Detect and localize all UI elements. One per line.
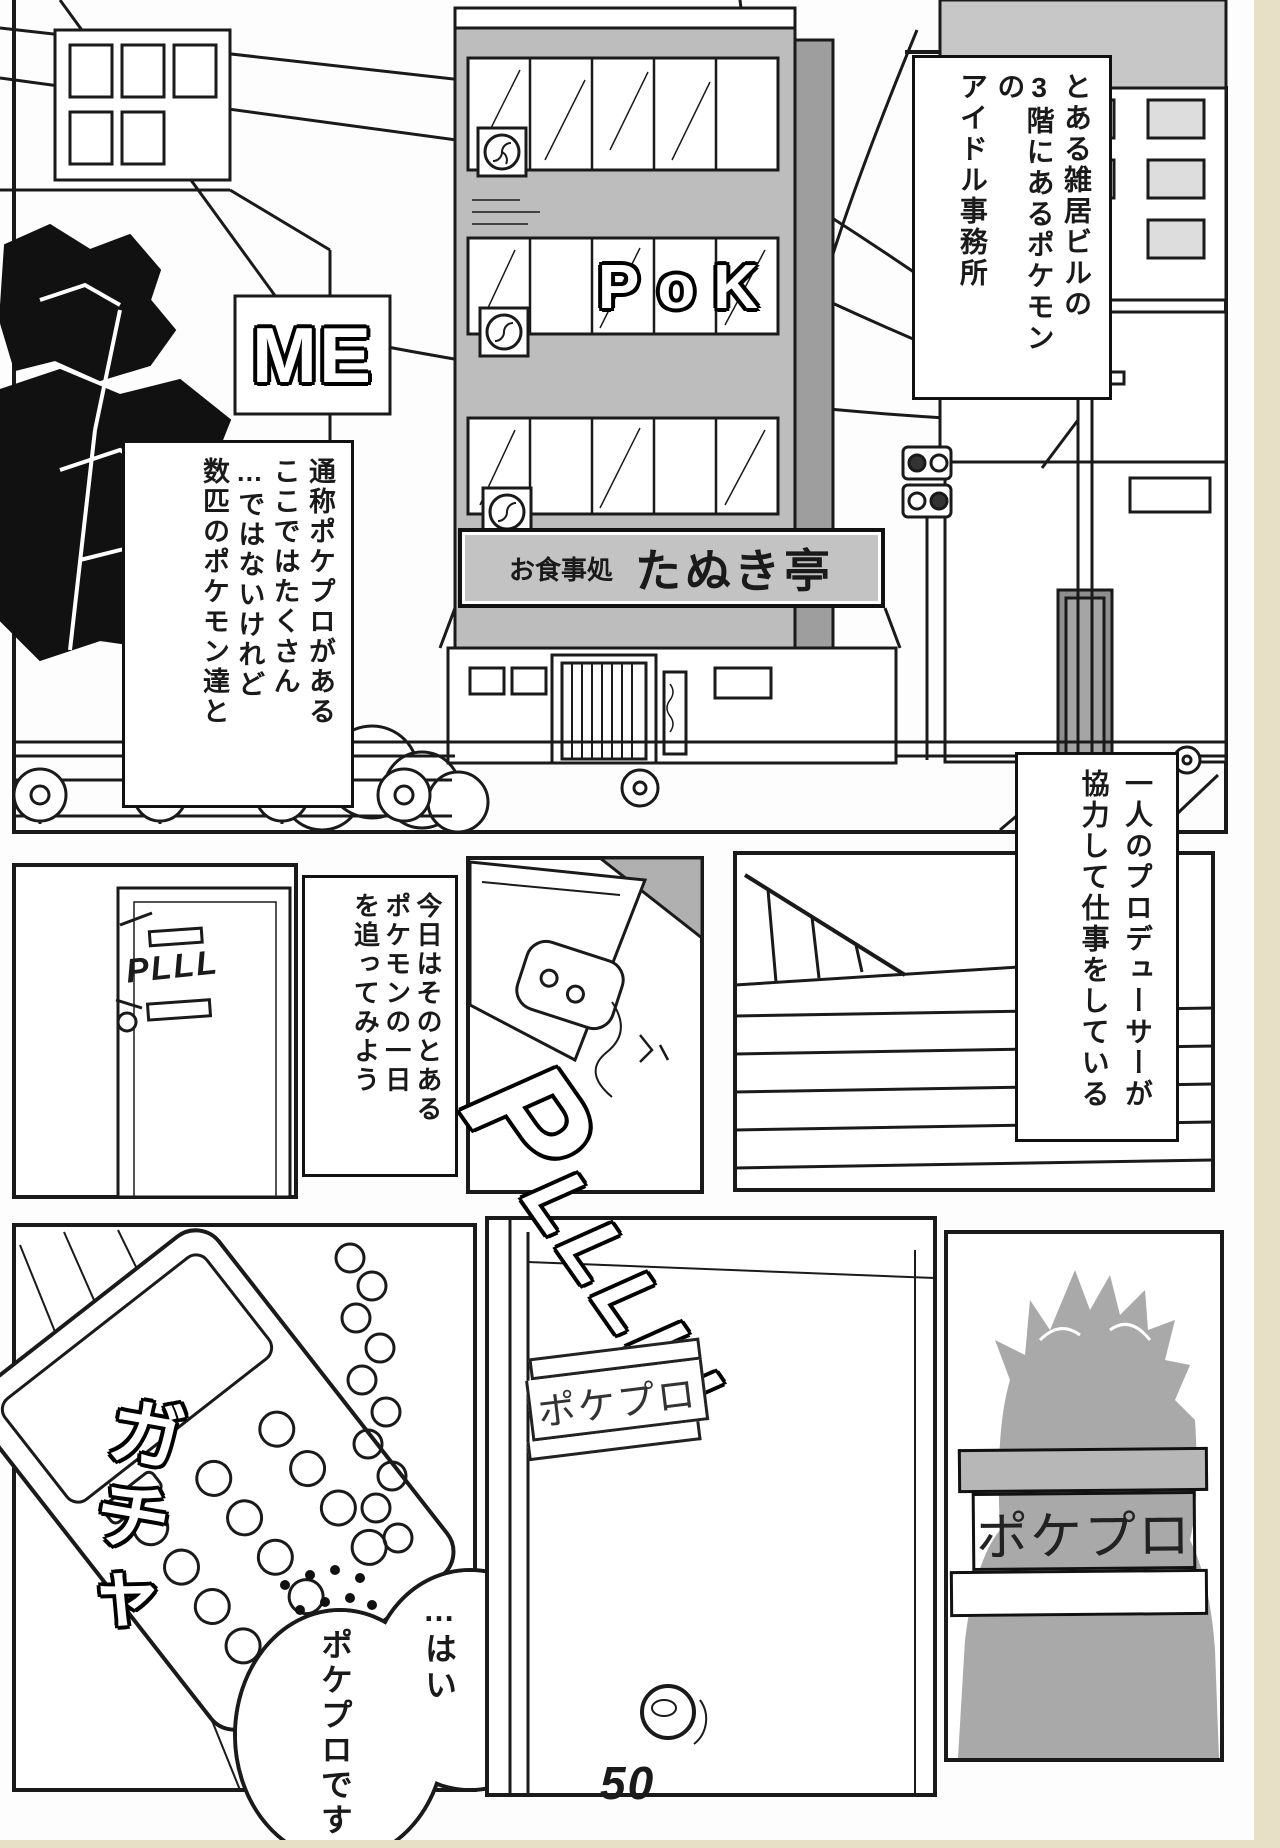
restaurant-sign-prefix: お食事処	[509, 550, 613, 587]
door-panel-art	[14, 865, 296, 1197]
silhouette-sign-label: ポケプロ	[972, 1491, 1197, 1571]
caption-producer-box: 一人のプロデューサーが 協力して仕事をしている	[1015, 752, 1179, 1142]
window-letters: PoK	[598, 252, 776, 323]
caption-producer-line: 協力して仕事をしている	[1079, 769, 1108, 1125]
caption-producer-line: 一人のプロデューサーが	[1123, 769, 1152, 1125]
scan-edge-bottom	[0, 1840, 1280, 1848]
silhouette-sign-top-bar	[958, 1447, 1208, 1493]
caption-pokepro-line: 通称ポケプロがある	[306, 457, 334, 791]
caption-pokepro-line: 数匹のポケモン達と	[200, 457, 228, 791]
caption-today-line: 今日はそのとある	[414, 892, 441, 1160]
caption-today-line: ポケモンの一日	[382, 892, 409, 1160]
caption-intro-line: とある雑居ビルの	[1062, 72, 1091, 383]
caption-pokepro-line: …ではないけれど	[235, 457, 263, 791]
restaurant-sign-name: たぬき亭	[635, 535, 834, 601]
speech-bubble-line: …はい	[416, 1592, 462, 1704]
central-building	[440, 8, 900, 763]
caption-intro-line: 3階にあるポケモンの	[995, 72, 1054, 383]
speech-bubble-line: ポケプロです	[312, 1628, 358, 1838]
page-number: 50	[600, 1756, 655, 1810]
caption-intro-box: とある雑居ビルの 3階にあるポケモンの アイドル事務所	[912, 55, 1112, 400]
caption-pokepro-box: 通称ポケプロがある ここではたくさん …ではないけれど 数匹のポケモン達と	[122, 440, 354, 808]
caption-today-line: を追ってみよう	[351, 892, 378, 1160]
office-door-sign: ポケプロ	[522, 1338, 711, 1461]
manga-page: とある雑居ビルの 3階にあるポケモンの アイドル事務所 通称ポケプロがある ここ…	[0, 0, 1280, 1848]
caption-intro-line: アイドル事務所	[957, 72, 986, 383]
caption-pokepro-line: ここではたくさん	[270, 457, 298, 791]
scan-edge-right	[1254, 0, 1280, 1848]
background-sign-letters: ME	[252, 310, 373, 401]
silhouette-sign-bottom-bar	[950, 1569, 1208, 1617]
restaurant-sign: お食事処 たぬき亭	[458, 528, 885, 608]
